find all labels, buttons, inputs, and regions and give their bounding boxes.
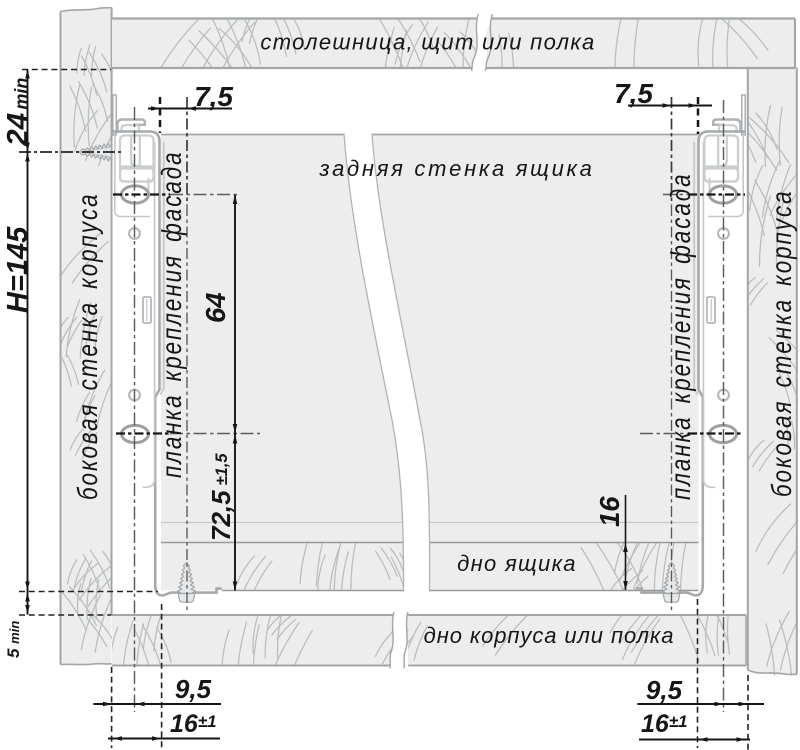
svg-text:7,5: 7,5: [614, 78, 653, 109]
svg-text:9,5: 9,5: [646, 675, 683, 705]
svg-text:дно корпуса или полка: дно корпуса или полка: [424, 623, 675, 648]
svg-text:планка крепления фасада: планка крепления фасада: [666, 172, 697, 500]
svg-text:дно ящика: дно ящика: [457, 551, 577, 576]
svg-text:9,5: 9,5: [175, 674, 212, 704]
svg-text:7,5: 7,5: [194, 81, 233, 112]
svg-text:планка крепления фасада: планка крепления фасада: [157, 150, 188, 478]
svg-text:H=145: H=145: [2, 226, 34, 313]
svg-text:16: 16: [594, 496, 625, 527]
svg-text:боковая стенка корпуса: боковая стенка корпуса: [73, 192, 104, 500]
svg-text:задняя стенка ящика: задняя стенка ящика: [318, 156, 594, 181]
svg-text:64: 64: [200, 292, 231, 323]
svg-text:столешница, щит или полка: столешница, щит или полка: [260, 30, 595, 55]
svg-text:боковая стенка корпуса: боковая стенка корпуса: [767, 189, 798, 497]
svg-text:5 min: 5 min: [4, 621, 23, 658]
